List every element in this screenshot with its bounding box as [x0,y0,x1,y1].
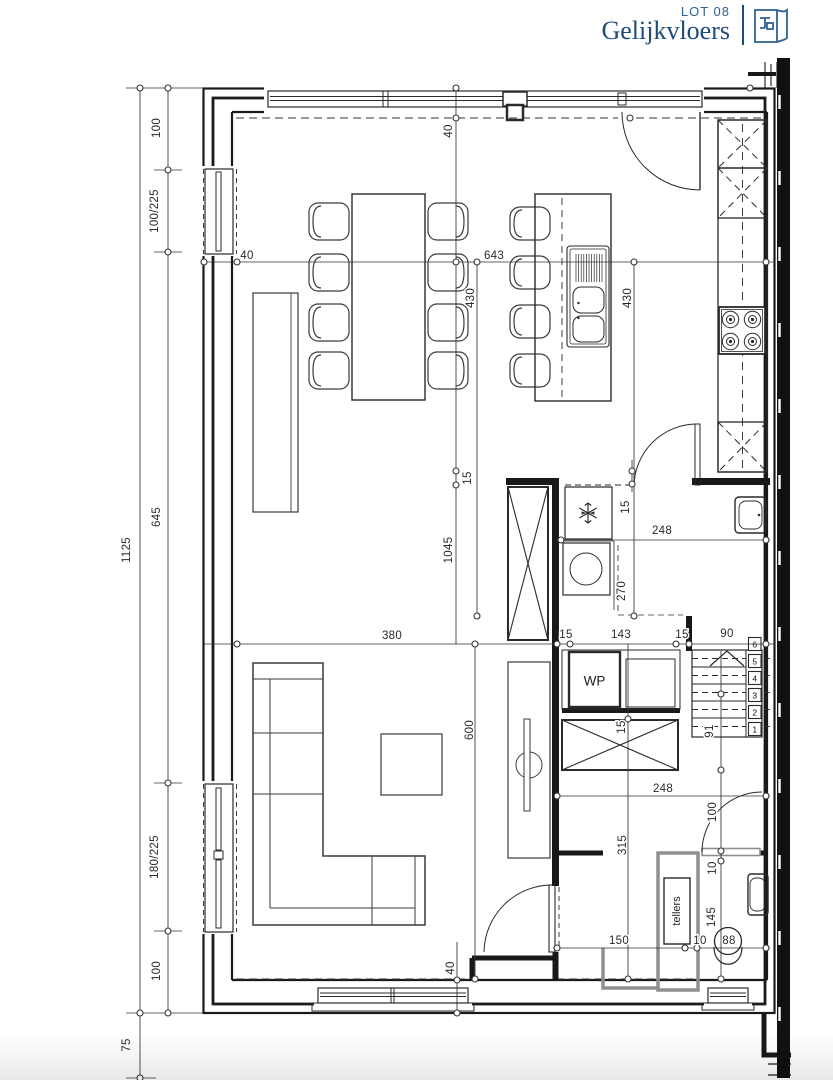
dim-label: 270 [616,581,628,601]
door-wc [702,792,762,856]
dim-label: 75 [121,1038,133,1051]
tv-screen [524,719,530,811]
drainer [576,254,602,282]
door-hall [484,885,559,952]
dim-label: 15 [620,500,632,513]
door-terrace [622,112,700,190]
dim-label: 15 [462,471,474,484]
dim-label: 1045 [443,537,455,564]
dim-label: 100 [151,961,163,981]
heat-pump-label: WP [584,674,606,689]
dim-label: 40 [240,250,253,262]
meter-closet [603,853,698,990]
dim-label: 15 [559,629,572,641]
dim-label: 15 [616,720,628,733]
interior-walls [472,62,791,1075]
dim-label: 100 [151,118,163,138]
stair-numbers: 6 5 4 3 2 1 [752,640,757,735]
dim-label: 145 [706,907,718,927]
sofa [253,663,425,925]
dim-label: 40 [443,124,455,137]
step-number: 4 [752,674,757,684]
dim-label: 248 [653,783,673,795]
sink-bowl [573,287,604,313]
floor-plan-page: LOT 08 Gelijkvloers [0,0,833,1080]
dim-label: 143 [611,629,631,641]
dim-label: 10 [707,861,719,874]
dim-label: 600 [464,720,476,740]
dining-chairs [309,203,468,389]
dim-label: 40 [445,961,457,974]
sink-unit [567,246,609,347]
rear-washbasin [735,497,766,533]
fridge [565,487,612,539]
dim-label: 180/225 [149,835,161,879]
snowflake-icon [579,503,596,523]
coffee-table [381,734,442,795]
sink-bowl [573,316,604,342]
dim-label: 315 [617,835,629,855]
faucet-dot [577,302,579,304]
dim-label: 10 [693,935,706,947]
dim-label: 90 [720,628,733,640]
dim-label: 248 [652,525,672,537]
step-number: 6 [752,640,757,650]
overhang-dashed-lines [236,118,765,979]
faucet-dot [577,317,579,319]
party-wall [780,58,784,1078]
step-number: 5 [752,657,757,667]
staircase [692,638,774,738]
cooktop [719,307,765,354]
dim-label: 15 [675,629,688,641]
stair-run-label: 91 [704,724,716,737]
dim-label: 430 [622,288,634,308]
door-utility [565,424,700,487]
washing-machine [563,541,614,610]
wall-openings [199,84,752,1010]
kitchen-island [535,194,611,401]
bar-stools [510,207,550,387]
stair-step-numbers [749,638,762,736]
dim-label: 100 [707,802,719,822]
dim-label: 380 [382,630,402,642]
step-number: 3 [752,691,757,701]
boiler-unit [626,659,675,707]
kitchen-tall-units [718,120,767,472]
tv-sideboard [508,662,550,858]
dim-label: 88 [722,935,735,947]
dim-label: 643 [484,250,504,262]
dim-label: 430 [465,288,477,308]
exterior-walls [204,89,775,1014]
meters-label: tellers [671,896,683,926]
storage-closet [508,487,548,640]
step-number: 1 [752,725,757,735]
dim-label: 150 [609,935,629,947]
dim-label: 100/225 [149,189,161,233]
dim-label: 1125 [121,537,133,563]
dining-table [352,194,425,400]
step-number: 2 [752,708,757,718]
dim-label: 645 [151,507,163,527]
